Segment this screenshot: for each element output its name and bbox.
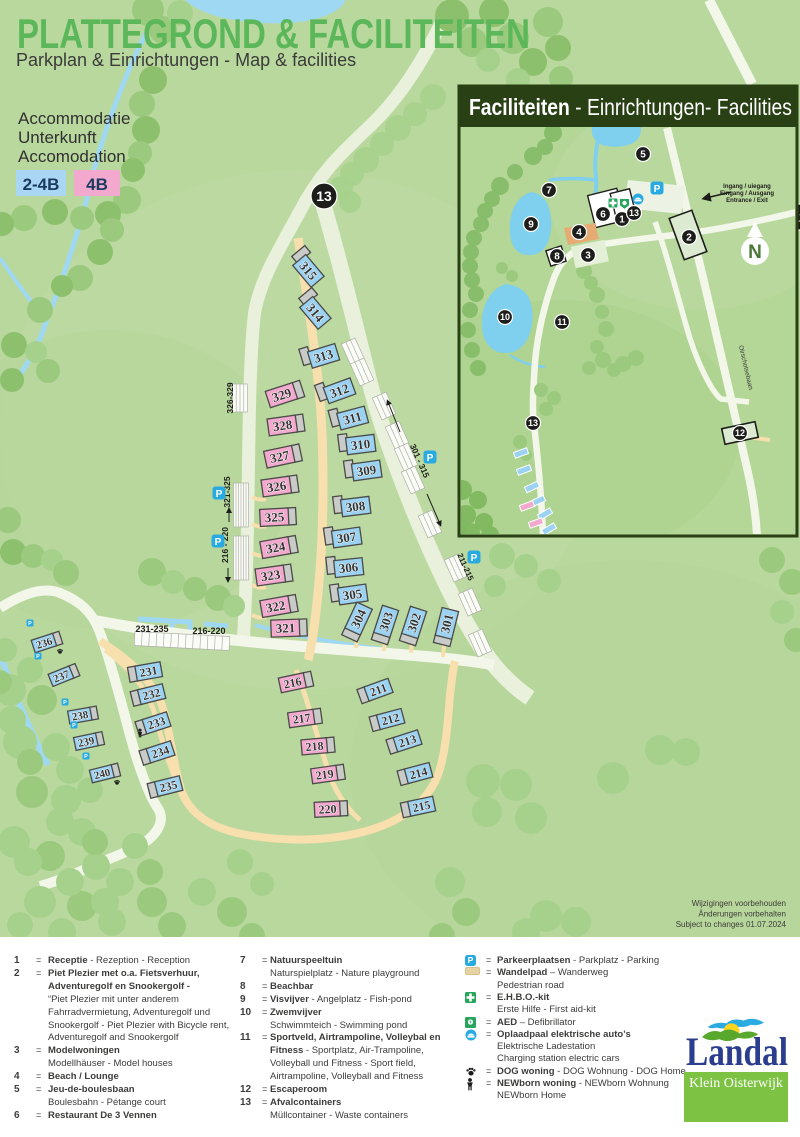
svg-text:1: 1: [619, 215, 625, 226]
svg-text:220: 220: [318, 802, 337, 817]
svg-text:13: 13: [316, 188, 332, 204]
svg-text:219: 219: [315, 766, 335, 782]
svg-text:2: 2: [686, 233, 692, 244]
svg-text:Accommodatie: Accommodatie: [18, 109, 130, 128]
svg-text:Faciliteiten - Einrichtungen-: Faciliteiten - Einrichtungen- Facilities: [469, 96, 792, 121]
svg-text:Parkplan & Einrichtungen - Map: Parkplan & Einrichtungen - Map & facilit…: [16, 50, 356, 70]
svg-text:9: 9: [528, 220, 534, 231]
svg-text:323: 323: [260, 567, 282, 585]
svg-text:217: 217: [292, 710, 312, 726]
svg-text:Klein Oisterwijk: Klein Oisterwijk: [689, 1076, 783, 1091]
svg-text:216-220: 216-220: [192, 626, 225, 636]
svg-text:231-235: 231-235: [135, 624, 168, 634]
svg-text:Landal: Landal: [686, 1029, 788, 1074]
svg-text:P: P: [36, 654, 40, 660]
svg-text:10: 10: [500, 312, 510, 322]
svg-text:328: 328: [272, 417, 294, 435]
svg-text:326: 326: [266, 478, 288, 496]
svg-text:6: 6: [600, 210, 606, 221]
svg-text:13: 13: [629, 208, 639, 218]
svg-text:4: 4: [576, 228, 582, 239]
svg-text:P: P: [216, 489, 223, 500]
svg-text:P: P: [654, 184, 661, 195]
svg-text:P: P: [72, 723, 76, 729]
svg-text:P: P: [28, 621, 32, 627]
svg-text:P: P: [427, 453, 434, 464]
svg-text:Unterkunft: Unterkunft: [18, 128, 97, 147]
svg-text:12: 12: [735, 428, 745, 438]
svg-text:Entrance / Exit: Entrance / Exit: [726, 198, 768, 204]
svg-text:310: 310: [350, 436, 371, 453]
svg-text:218: 218: [305, 739, 324, 755]
svg-text:Wijzigingen voorbehouden: Wijzigingen voorbehouden: [692, 899, 786, 908]
svg-text:Subject to changes 01.07.2024: Subject to changes 01.07.2024: [676, 920, 787, 929]
svg-text:306: 306: [338, 559, 359, 576]
svg-text:P: P: [215, 537, 222, 548]
svg-text:307: 307: [336, 529, 358, 547]
svg-text:325: 325: [264, 509, 285, 525]
svg-text:7: 7: [546, 186, 552, 197]
svg-text:5: 5: [640, 150, 646, 161]
svg-text:P: P: [84, 754, 88, 760]
svg-text:309: 309: [356, 462, 378, 480]
svg-text:P: P: [471, 553, 478, 564]
svg-text:308: 308: [345, 498, 367, 515]
svg-text:11: 11: [557, 317, 567, 327]
svg-text:8: 8: [554, 252, 560, 263]
svg-text:3: 3: [585, 251, 591, 262]
svg-text:N: N: [748, 242, 762, 263]
svg-text:Accomodation: Accomodation: [18, 147, 126, 166]
svg-text:Änderungen vorbehalten: Änderungen vorbehalten: [698, 910, 786, 919]
svg-text:4B: 4B: [86, 175, 108, 194]
svg-text:321: 321: [275, 620, 295, 636]
svg-text:2-4B: 2-4B: [23, 175, 60, 194]
svg-text:Ingang / uiegang: Ingang / uiegang: [723, 184, 771, 190]
svg-text:Eingang / Ausgang: Eingang / Ausgang: [720, 191, 774, 197]
svg-text:326-329: 326-329: [225, 382, 235, 413]
svg-text:P: P: [63, 700, 67, 706]
svg-text:13: 13: [528, 418, 538, 428]
svg-text:305: 305: [342, 586, 364, 604]
